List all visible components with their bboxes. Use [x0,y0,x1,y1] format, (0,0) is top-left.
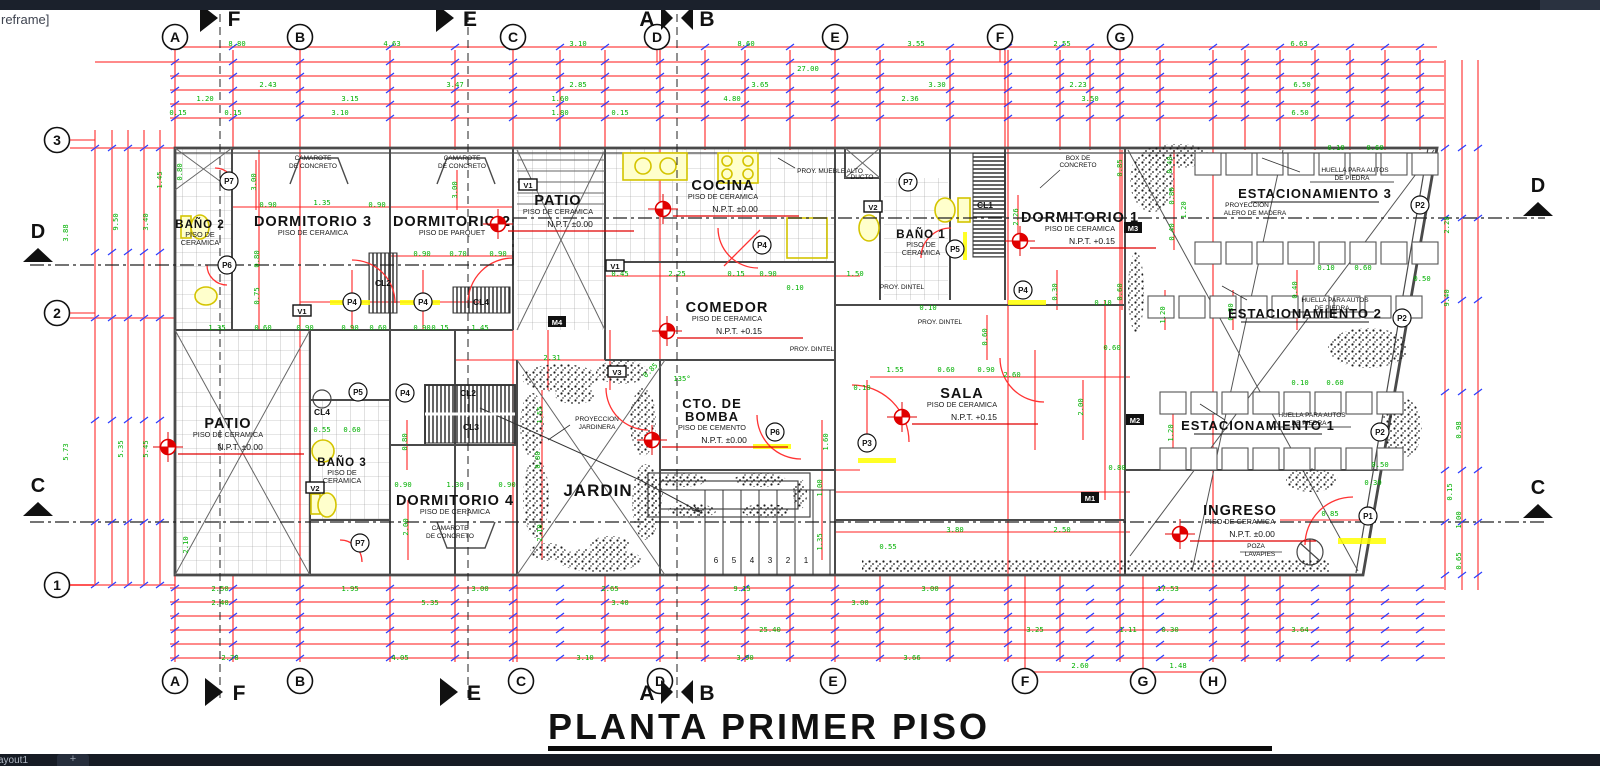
grid-bubble: E [821,669,846,694]
section-flag-marker: F [205,678,246,706]
dimension-label: 1.45 [155,171,164,188]
dimension-label: 3.40 [611,598,628,607]
dimension-label: 0.30 [1161,625,1178,634]
dimension-label: 0.85 [641,361,660,380]
dimension-label: 1.80 [551,108,568,117]
dimension-label: 1.55 [535,406,544,423]
annotation-label: DE CONCRETO [289,163,337,170]
grid-bubble-label: 1 [53,577,61,593]
element-tag: P7 [220,172,238,190]
dimension-label: 1.30 [446,480,463,489]
grid-bubble-label: G [1115,29,1126,45]
cad-application-window: 8.804.633.108.603.552.556.6327.002.433.4… [0,0,1600,766]
room-npt-level: N.P.T. ±0.00 [1229,529,1275,539]
grid-bubble: 3 [45,128,70,153]
stone-pad [1191,392,1217,414]
dimension-label: 0.60 [254,323,271,332]
dimension-label: 3.30 [928,80,945,89]
element-tag: P6 [766,423,784,441]
grid-bubble: G [1131,669,1156,694]
element-tag: P7 [899,173,917,191]
dimension-label: 2.23 [1069,80,1086,89]
room-label: DORMITORIO 3PISO DE CERAMICA [254,214,372,237]
element-tag: P1 [1359,507,1377,525]
dimension-label: 0.40 [1290,281,1299,298]
dimension-label: 0.65 [1454,552,1463,569]
grid-bubble: B [288,669,313,694]
dimension-label: 3.00 [249,173,258,190]
status-bar: ayout1 + [0,754,1600,766]
room-subtitle: PISO DE CERAMICA [688,192,758,201]
grid-bubble-label: B [295,29,305,45]
stone-pad [1315,448,1341,470]
room-subtitle: PISO DE CERAMICA [193,430,263,439]
element-tag: P4 [1014,281,1032,299]
grid-bubble: 2 [45,301,70,326]
annotation-label: DUCTO [851,174,874,181]
annotation-label: PROYECCION [1225,202,1269,209]
dimension-label: 0.80 [175,163,184,180]
grid-bubble-label: F [996,29,1005,45]
stone-pad [1191,448,1217,470]
element-tag: V1 [293,305,311,316]
dimension-label: 1.35 [208,323,225,332]
top-bar [0,0,1600,10]
grid-bubble: F [1013,669,1038,694]
dimension-label: 0.80 [1108,463,1125,472]
dimension-label: 2.26 [1011,208,1020,225]
element-tag: CL4 [314,407,330,417]
dimension-label: 2.40 [211,598,228,607]
element-tag: M4 [548,316,566,327]
dimension-label: 2.10 [181,536,190,553]
grid-bubble: C [509,669,534,694]
dimension-label: 2.25 [668,269,685,278]
dimension-label: 0.10 [1327,143,1344,152]
dimension-label: 1.20 [1166,424,1175,441]
dimension-label: 3.64 [1291,625,1308,634]
room-subtitle: CERAMICA [323,476,362,485]
section-cut-marker: D [23,221,53,262]
element-tag: P2 [1371,423,1389,441]
door-tag: P4 [757,241,767,250]
section-flag-label: E [467,682,481,705]
stone-pad [1315,392,1341,414]
dimension-label: 3.15 [341,94,358,103]
stone-pad [1412,242,1438,264]
dimension-label: 0.90 [296,323,313,332]
element-tag: V2 [306,482,324,493]
top-bar-corner [1540,0,1600,10]
dimension-label: 1.20 [1158,306,1167,323]
dimension-label: 2.85 [569,80,586,89]
dimension-label: 1.00 [815,479,824,496]
stone-pad [1350,242,1376,264]
section-cut-label: C [31,475,45,497]
dimension-label: 0.75 [252,287,261,304]
stone-pad [1284,392,1310,414]
dimension-label: 0.10 [919,303,936,312]
section-b-label: B [699,682,714,705]
dimension-label: 25.40 [759,625,781,634]
element-tag: CL1 [977,200,993,210]
grid-bubble-label: 2 [53,305,61,321]
dimension-label: 1.55 [886,365,903,374]
grid-bubble-label: 3 [53,132,61,148]
add-layout-tab[interactable]: + [57,754,89,766]
dimension-label: 2.60 [1071,661,1088,670]
annotation-label: ALERO DE MADERA [1224,210,1287,217]
viewcube[interactable]: W [1540,10,1600,200]
dimension-label: 2.50 [1053,525,1070,534]
dimension-label: 0.90 [413,323,430,332]
room-label: COMEDORPISO DE CERAMICAN.P.T. +0.15 [652,300,803,346]
grid-bubble-label: F [1021,673,1030,689]
annotation-label: HUELLA PARA AUTOS [1301,297,1369,304]
viewport-controls-label[interactable]: reframe] [1,12,49,27]
stone-pad [1284,448,1310,470]
dimension-label: 3.10 [331,108,348,117]
drawing-canvas: 8.804.633.108.603.552.556.6327.002.433.4… [0,0,1600,766]
door-tag: P7 [224,177,234,186]
stair-number: 6 [714,556,719,565]
dimension-label: 3.40 [141,213,150,230]
dimension-label: 1.48 [1169,661,1186,670]
dimension-label: 0.90 [489,249,506,258]
dimension-label: 0.80 [400,433,409,450]
dimension-label: 0.50 [1371,460,1388,469]
room-npt-level: N.P.T. ±0.00 [217,442,263,452]
dimension-label: 1.50 [846,269,863,278]
dimension-label: 0.55 [313,425,330,434]
stone-pad [1195,242,1221,264]
dimension-label: 1.00 [1454,511,1463,528]
door-tag: P4 [1018,286,1028,295]
element-tag: P7 [351,534,369,552]
dimension-label: 2.36 [901,94,918,103]
dimension-label: 2.00 [1076,398,1085,415]
dimension-label: 1.60 [821,433,830,450]
room-subtitle: PISO DE CERAMICA [278,228,348,237]
door-tag: P6 [222,261,232,270]
door-tag: P7 [903,178,913,187]
dimension-label: 0.90 [413,249,430,258]
dimension-label: 1.35 [815,533,824,550]
sheet-title: PLANTA PRIMER PISO [548,706,1272,751]
dimension-label: 9.50 [111,213,120,230]
stone-pad [1253,392,1279,414]
dimension-label: 9.40 [1442,289,1451,306]
dimension-label: 3.80 [946,525,963,534]
dimension-label: 0.60 [1115,283,1124,300]
stone-pad [1346,448,1372,470]
stair-number: 7 [698,509,703,518]
section-flag-label: F [228,8,241,31]
stair-number: 2 [786,556,791,565]
grid-bubble: F [988,25,1013,50]
closet-tag: CL3 [463,422,479,432]
door-tag: P2 [1375,428,1385,437]
section-cut-label: D [31,221,45,243]
door-tag: P4 [418,298,428,307]
dimension-label: 3.00 [471,584,488,593]
room-npt-level: N.P.T. +0.15 [716,326,762,336]
dimension-label: 0.55 [879,542,896,551]
grid-bubble: A [163,25,188,50]
dimension-label: 0.60 [980,328,989,345]
element-tag: M2 [1126,414,1144,425]
room-label: SALAPISO DE CERAMICAN.P.T. +0.15 [887,386,1038,432]
element-tag: P4 [396,384,414,402]
stone-pad [1226,153,1252,175]
door-tag: P4 [400,389,410,398]
element-tag: CL3 [463,422,479,432]
annotation-label: HUELLA PARA AUTOS [1321,167,1389,174]
door-frame-tag: M3 [1128,224,1138,233]
room-subtitle: PISO DE CERAMICA [420,507,490,516]
room-subtitle: CERAMICA [181,238,220,247]
stone-pad [1253,448,1279,470]
stone-pad [1160,448,1186,470]
grid-bubble: H [1201,669,1226,694]
dimension-label: 6.50 [1291,108,1308,117]
grid-bubble-label: C [516,673,526,689]
element-tag: P4 [414,293,432,311]
dimension-label: 0.10 [1094,298,1111,307]
dimension-label: 0.90 [977,365,994,374]
room-name: ESTACIONAMIENTO 2 [1228,306,1382,321]
closet-tag: CL4 [314,407,330,417]
dimension-label: 0.90 [759,269,776,278]
stone-pad [1288,153,1314,175]
dimension-label: 3.00 [851,598,868,607]
dimension-label: 2.78 [221,653,238,662]
dimension-label: 0.60 [1354,263,1371,272]
dimension-label: 3.88 [61,224,70,241]
closet-tag: CL4 [473,297,489,307]
door-tag: P6 [770,428,780,437]
dimension-label: 3.47 [446,80,463,89]
grid-bubble: B [288,25,313,50]
annotation-label: POZA [1247,543,1265,550]
room-subtitle: PISO DE CERAMICA [1045,224,1115,233]
annotation-label: HUELLA PARA AUTOS [1278,412,1346,419]
stone-pad [1381,242,1407,264]
dimension-label: 0.60 [1366,143,1383,152]
dimension-label: 1.95 [341,584,358,593]
dimension-label: 2.65 [601,584,618,593]
dimension-label: 2.10 [535,524,544,541]
door-tag: P2 [1397,314,1407,323]
door-tag: P2 [1415,201,1425,210]
layout-tab[interactable]: ayout1 [0,755,28,766]
dimension-label: 0.15 [727,269,744,278]
closet-tag: CL2 [460,388,476,398]
annotation-label: DE CONCRETO [438,163,486,170]
dimension-label: 3.90 [736,653,753,662]
dimension-label: 0.70 [449,249,466,258]
dimension-label: 0.30 [1050,283,1059,300]
dimension-label: 8.80 [228,39,245,48]
annotation-label: DE PIEDRA [1291,420,1327,427]
dimension-label: 1.60 [551,94,568,103]
room-subtitle: PISO DE CERAMICA [692,314,762,323]
dimension-label: 1.45 [471,323,488,332]
dimension-label: 5.35 [421,598,438,607]
section-flag-marker: E [440,678,481,706]
stair-number: 1 [804,556,809,565]
grid-bubble-label: A [170,29,180,45]
window-tag: V2 [310,484,319,493]
room-subtitle: CERAMICA [902,248,941,257]
stone-pad [1195,153,1221,175]
section-a-label: A [639,682,654,705]
dimension-label: 0.80 [252,250,261,267]
dimension-label: 2.50 [211,584,228,593]
door-tag: P1 [1363,512,1373,521]
element-tag: P4 [753,236,771,254]
stone-pad [1288,242,1314,264]
dimension-label: 0.90 [341,323,358,332]
room-name: BOMBA [685,409,739,424]
annotation-label: LAVAPIES [1245,551,1276,558]
annotation-label: PROY. DINTEL [918,319,963,326]
room-label: DORMITORIO 4PISO DE CERAMICA [396,493,514,516]
dimension-label: 5.73 [61,443,70,460]
dimension-label: 4.63 [383,39,400,48]
section-cut-marker: C [23,475,53,516]
window-tag: V2 [868,203,877,212]
window-tag: V1 [297,307,306,316]
dimension-label: 0.15 [169,108,186,117]
element-tag: V1 [606,260,624,271]
dimension-label: 0.15 [1445,483,1454,500]
section-a-label: A [639,8,654,31]
dimension-label: 0.98 [1454,421,1463,438]
stone-pad [1222,448,1248,470]
section-cut-marker: C [1523,477,1553,518]
dimension-label: 3.50 [1081,94,1098,103]
dimension-label: 0.60 [369,323,386,332]
grid-bubble: C [501,25,526,50]
dimension-label: 0.90 [394,480,411,489]
element-tag: CL2 [375,278,391,288]
dimension-label: 0.10 [853,383,870,392]
dimension-label: 2.00 [401,518,410,535]
dimension-label: 0.90 [498,480,515,489]
element-tag: P6 [218,256,236,274]
dimension-label: 2.28 [1442,216,1451,233]
dimension-label: 0.60 [343,425,360,434]
dimension-label: 0.90 [368,200,385,209]
stair-number: 3 [768,556,773,565]
dimension-label: 3.00 [921,584,938,593]
dimension-label: 2.55 [1053,39,1070,48]
annotation-label: CAMAROTE [432,525,470,532]
element-tag: CL2 [460,388,476,398]
dimension-label: 2.60 [1003,370,1020,379]
dimension-label: 9.15 [733,584,750,593]
dimension-label: 0.90 [259,200,276,209]
room-npt-level: N.P.T. +0.15 [951,412,997,422]
room-label: JARDIN [563,481,632,500]
annotation-label: JARDINERA [579,424,617,431]
door-tag: P4 [347,298,357,307]
dimension-label: 5.45 [141,440,150,457]
annotation-label: PROY. DINTEL [790,346,835,353]
stone-pad [1377,392,1403,414]
element-tag: M3 [1124,222,1142,233]
room-subtitle: PISO DE CERAMICA [523,207,593,216]
dimension-label: 4.80 [723,94,740,103]
grid-bubble-label: A [170,673,180,689]
dimension-label: 6.50 [1293,80,1310,89]
element-tag: P2 [1393,309,1411,327]
dimension-label: 0.10 [1317,263,1334,272]
stone-pad [1226,242,1252,264]
dimension-label: 4.05 [391,653,408,662]
stone-pad [1222,392,1248,414]
dimension-label: 0.40 [1165,156,1174,173]
dimension-label: 3.00 [450,181,459,198]
element-tag: P2 [1411,196,1429,214]
grid-bubble-label: B [295,673,305,689]
room-label: ESTACIONAMIENTO 3 [1238,186,1392,202]
dimension-label: 1.35 [313,198,330,207]
room-npt-level: N.P.T. ±0.00 [701,435,747,445]
grid-bubble-label: E [830,29,839,45]
dimension-label: 0.60 [1103,343,1120,352]
room-name: ESTACIONAMIENTO 3 [1238,186,1392,201]
grid-bubble-label: D [652,29,662,45]
annotation-label: DE PIEDRA [1334,175,1370,182]
grid-bubble: A [163,669,188,694]
element-tag: P4 [343,293,361,311]
stone-pad [1346,392,1372,414]
grid-bubble-label: H [1208,673,1218,689]
dimension-label: 0.15 [431,323,448,332]
dimension-label: 3.10 [569,39,586,48]
dimension-label: 1.20 [196,94,213,103]
section-cut-label: C [1531,477,1545,499]
annotation-label: CAMAROTE [295,155,333,162]
element-tag: V2 [864,201,882,212]
dimension-label: 0.30 [1364,478,1381,487]
room-npt-level: N.P.T. ±0.00 [547,219,593,229]
closet-tag: CL2 [375,278,391,288]
element-tag: V3 [608,366,626,377]
dimension-label: 0.85 [1115,159,1124,176]
stair-number: 5 [732,556,737,565]
door-frame-tag: M4 [552,318,563,327]
room-label: INGRESOPISO DE CERAMICAN.P.T. ±0.00 [1165,503,1316,549]
door-tag: P5 [353,388,363,397]
grid-bubble: E [823,25,848,50]
dimension-label: 0.60 [937,365,954,374]
annotation-label: BOX DE [1066,155,1091,162]
door-tag: P7 [355,539,365,548]
stone-pad [1319,242,1345,264]
section-flag-label: F [233,682,246,705]
dimension-label: 3.65 [751,80,768,89]
room-npt-level: N.P.T. ±0.00 [712,204,758,214]
stone-pad [1412,153,1438,175]
window-tag: V1 [523,181,532,190]
dimension-label: 27.00 [797,64,819,73]
room-name: JARDIN [563,481,632,500]
annotation-label: CONCRETO [1059,162,1096,169]
dimension-label: 5.35 [116,440,125,457]
